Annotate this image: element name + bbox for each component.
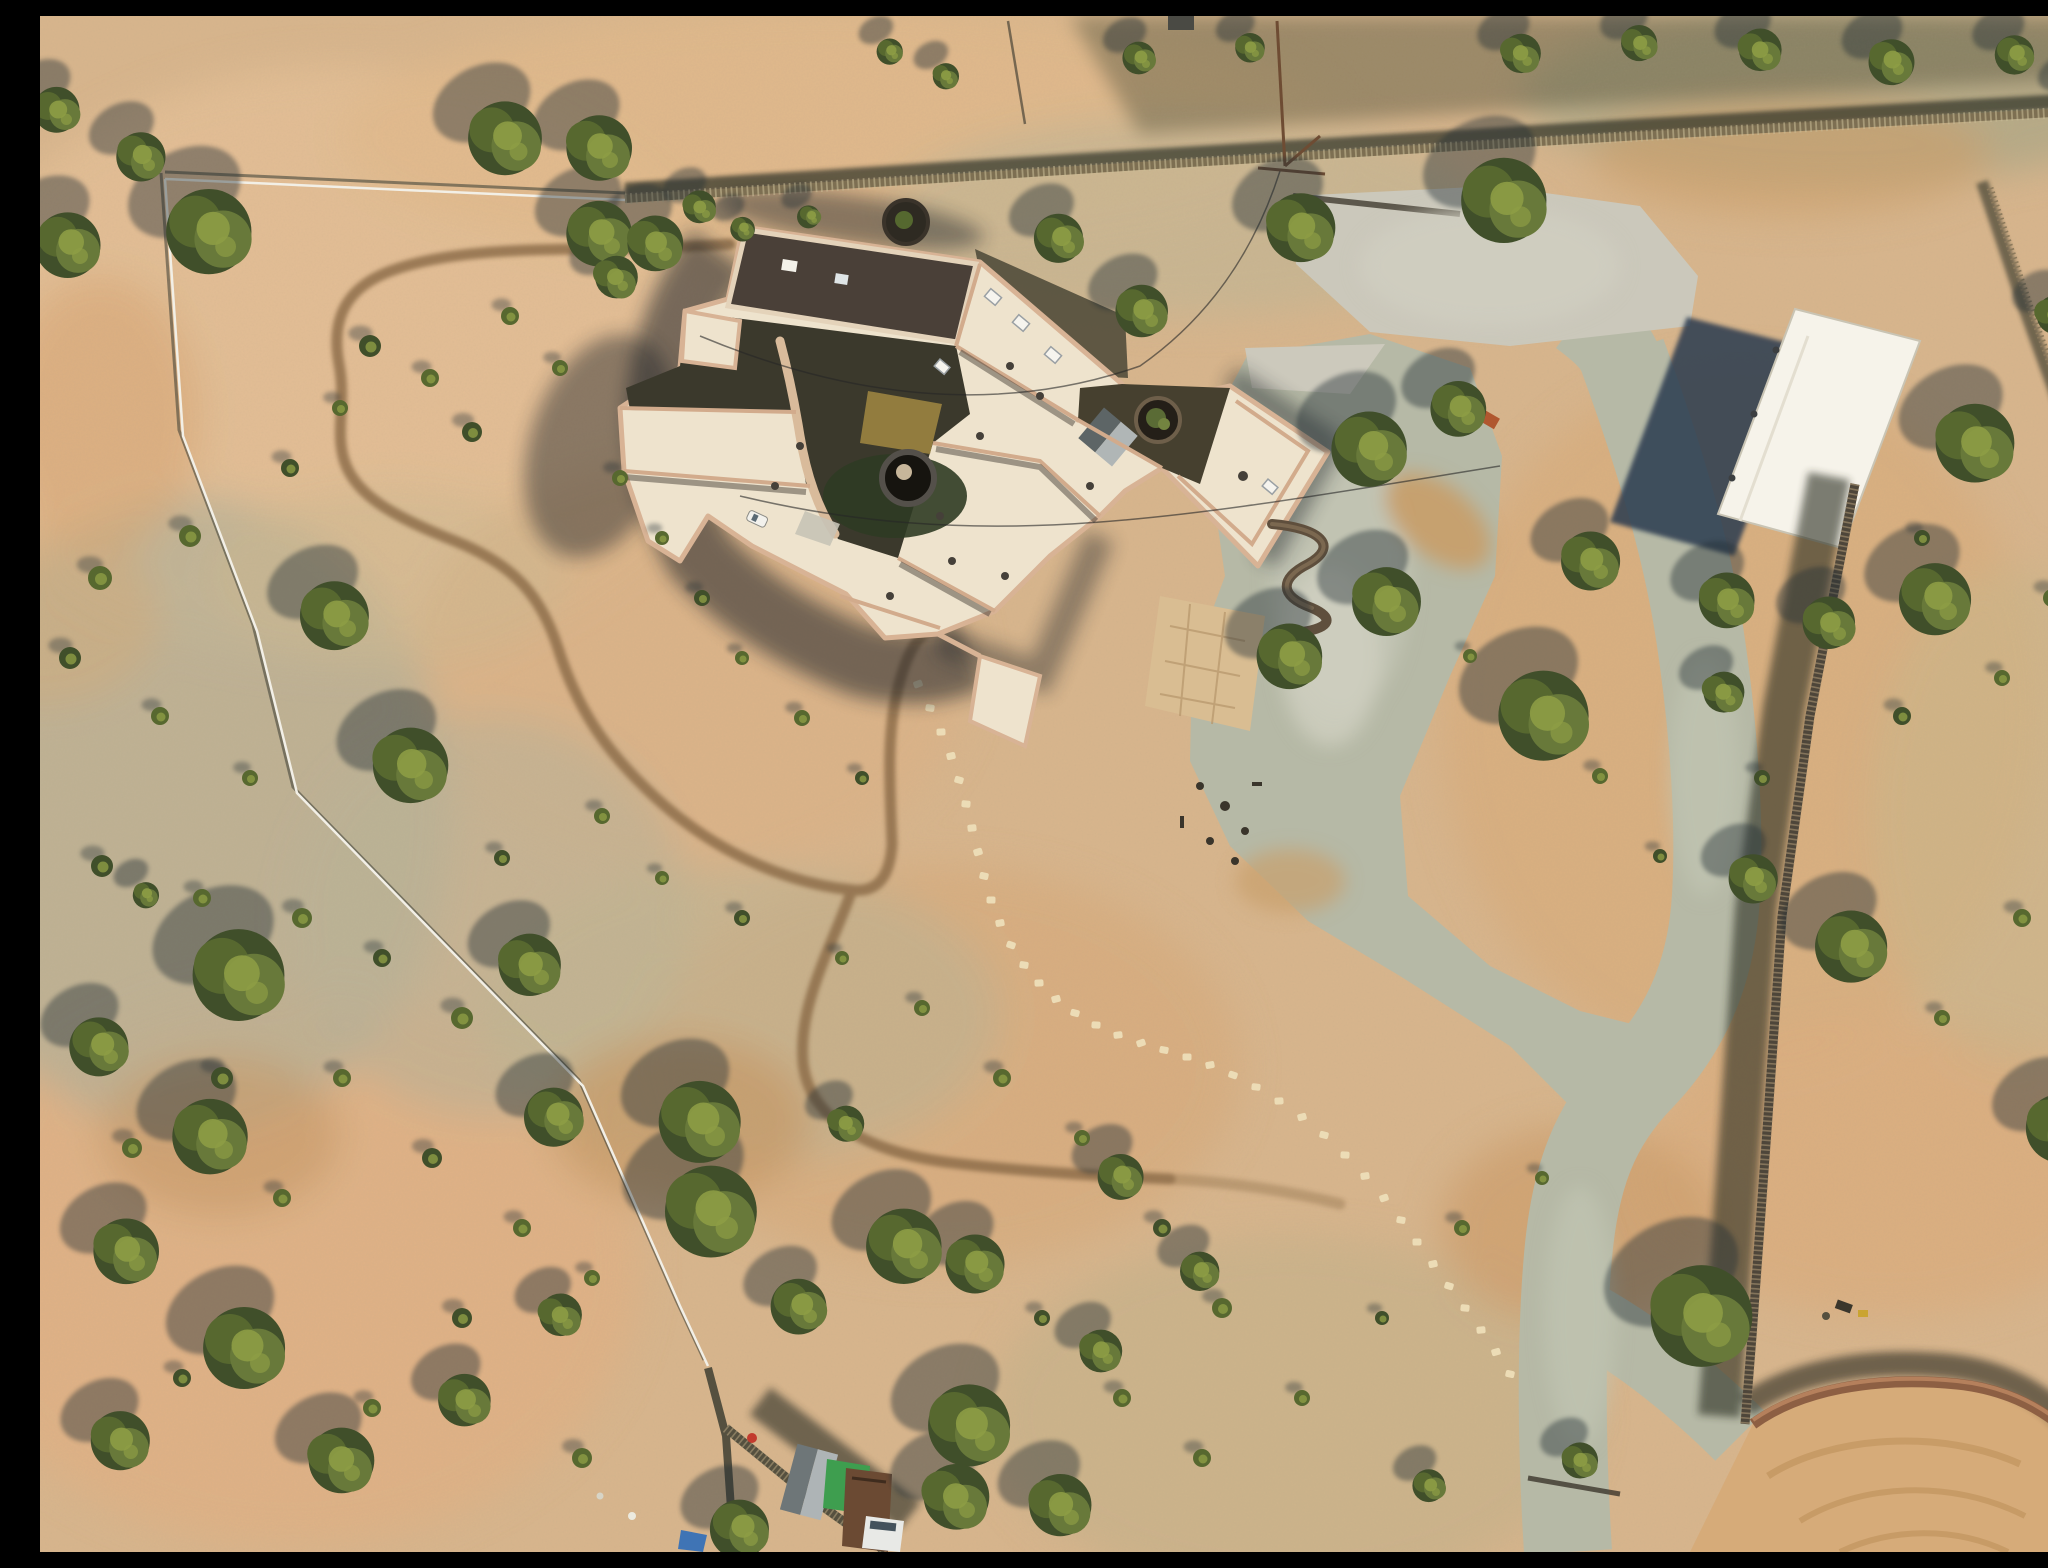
bush: [1535, 1171, 1549, 1185]
bush: [993, 1069, 1011, 1087]
tree: [1498, 671, 1589, 761]
tree: [1266, 193, 1335, 262]
bush: [835, 951, 849, 965]
stepping-stone: [986, 896, 995, 903]
tree: [438, 1374, 490, 1426]
tree: [91, 1411, 150, 1470]
casita-roof: [682, 311, 740, 368]
tree: [300, 581, 369, 650]
bush: [359, 335, 381, 357]
tree: [1180, 1252, 1219, 1291]
bush: [122, 1138, 142, 1158]
bush: [1074, 1130, 1090, 1146]
tree: [928, 1384, 1010, 1466]
tree: [730, 217, 755, 242]
bush: [91, 855, 113, 877]
stepping-stone: [1251, 1083, 1261, 1091]
bush: [292, 908, 312, 928]
bush: [1653, 849, 1667, 863]
bush: [179, 525, 201, 547]
bush: [855, 771, 869, 785]
tree: [1430, 381, 1486, 437]
bush: [584, 1270, 600, 1286]
tree: [1650, 1265, 1752, 1367]
stepping-stone: [1183, 1054, 1192, 1061]
fire-pit: [882, 452, 934, 504]
stepping-stone: [1340, 1151, 1349, 1158]
white-vehicle: [862, 1516, 904, 1552]
bush: [1893, 707, 1911, 725]
tree: [69, 1017, 129, 1076]
bush: [363, 1399, 381, 1417]
tree: [1995, 35, 2034, 74]
stepping-stone: [1019, 961, 1029, 969]
bush: [501, 307, 519, 325]
tree: [93, 1219, 159, 1285]
bush: [1463, 649, 1477, 663]
bush: [572, 1448, 592, 1468]
stepping-stone: [936, 728, 945, 735]
red-object: [747, 1433, 757, 1443]
tree: [866, 1209, 942, 1284]
bush: [1914, 530, 1930, 546]
tree: [627, 216, 683, 272]
bush: [734, 910, 750, 926]
stepping-stone: [1476, 1326, 1486, 1334]
tree: [133, 882, 159, 908]
stepping-stone: [967, 824, 977, 832]
bush: [552, 360, 568, 376]
tree: [659, 1081, 741, 1163]
bush: [735, 651, 749, 665]
tree: [1729, 854, 1778, 903]
bush: [494, 850, 510, 866]
bush: [914, 1000, 930, 1016]
tree: [172, 1099, 247, 1174]
bush: [655, 871, 669, 885]
bush: [1375, 1311, 1389, 1325]
tree: [166, 189, 251, 274]
tree: [933, 63, 959, 89]
bush: [193, 889, 211, 907]
bush: [1934, 1010, 1950, 1026]
bush: [422, 1148, 442, 1168]
bush: [513, 1219, 531, 1237]
tree: [468, 101, 542, 175]
tree: [116, 132, 165, 181]
bush: [333, 1069, 351, 1087]
bush: [594, 808, 610, 824]
bush: [242, 770, 258, 786]
bush: [211, 1067, 233, 1089]
tree: [1352, 567, 1421, 636]
tree: [1561, 531, 1620, 590]
tree: [877, 38, 903, 64]
bush: [1153, 1219, 1171, 1237]
bush: [281, 459, 299, 477]
bush: [1454, 1220, 1470, 1236]
round-planter-north: [884, 200, 928, 244]
tree: [566, 115, 632, 181]
bush: [1754, 770, 1770, 786]
bush: [2013, 909, 2031, 927]
bush: [462, 422, 482, 442]
stone-planter: [1136, 398, 1180, 442]
tree: [1115, 285, 1167, 337]
bush: [1294, 1390, 1310, 1406]
bush: [59, 647, 81, 669]
tree: [1869, 39, 1915, 85]
tree: [1935, 404, 2014, 483]
tree: [1699, 573, 1755, 629]
bush: [1592, 768, 1608, 784]
tree: [203, 1307, 285, 1389]
bush: [452, 1308, 472, 1328]
bush: [88, 566, 112, 590]
tree: [372, 728, 448, 803]
stepping-stone: [1360, 1172, 1370, 1180]
bush: [1193, 1449, 1211, 1467]
aerial-photo: Overhead drone photo of a pueblo-style a…: [40, 16, 2048, 1552]
tree: [945, 1234, 1004, 1293]
stepping-stone: [1034, 979, 1043, 986]
bush: [421, 369, 439, 387]
stepping-stone: [1412, 1238, 1421, 1245]
stepping-stone: [1274, 1097, 1283, 1105]
bush: [373, 949, 391, 967]
tree: [193, 929, 285, 1021]
bush: [151, 707, 169, 725]
bush: [655, 531, 669, 545]
tree: [1331, 411, 1406, 486]
stepping-stone: [1460, 1304, 1470, 1312]
stepping-stone: [1091, 1021, 1100, 1029]
tree: [1461, 158, 1546, 243]
bush: [273, 1189, 291, 1207]
trailer-top-edge: [1168, 16, 1194, 30]
aerial-photo-canvas: [40, 16, 2048, 1552]
tree: [1815, 911, 1887, 983]
tree: [1098, 1154, 1144, 1200]
bush: [612, 470, 628, 486]
tree: [1235, 33, 1265, 63]
bush: [332, 400, 348, 416]
bush: [451, 1007, 473, 1029]
bush: [173, 1369, 191, 1387]
stepping-stone: [1113, 1031, 1123, 1039]
bush: [694, 590, 710, 606]
bush: [1113, 1389, 1131, 1407]
tree: [665, 1166, 757, 1258]
stepping-stone: [925, 704, 935, 712]
stepping-stone: [961, 800, 971, 808]
bush: [1034, 1310, 1050, 1326]
tree: [1257, 624, 1323, 690]
tree: [1899, 563, 1971, 635]
bush: [794, 710, 810, 726]
bush: [1994, 670, 2010, 686]
bush: [1212, 1298, 1232, 1318]
